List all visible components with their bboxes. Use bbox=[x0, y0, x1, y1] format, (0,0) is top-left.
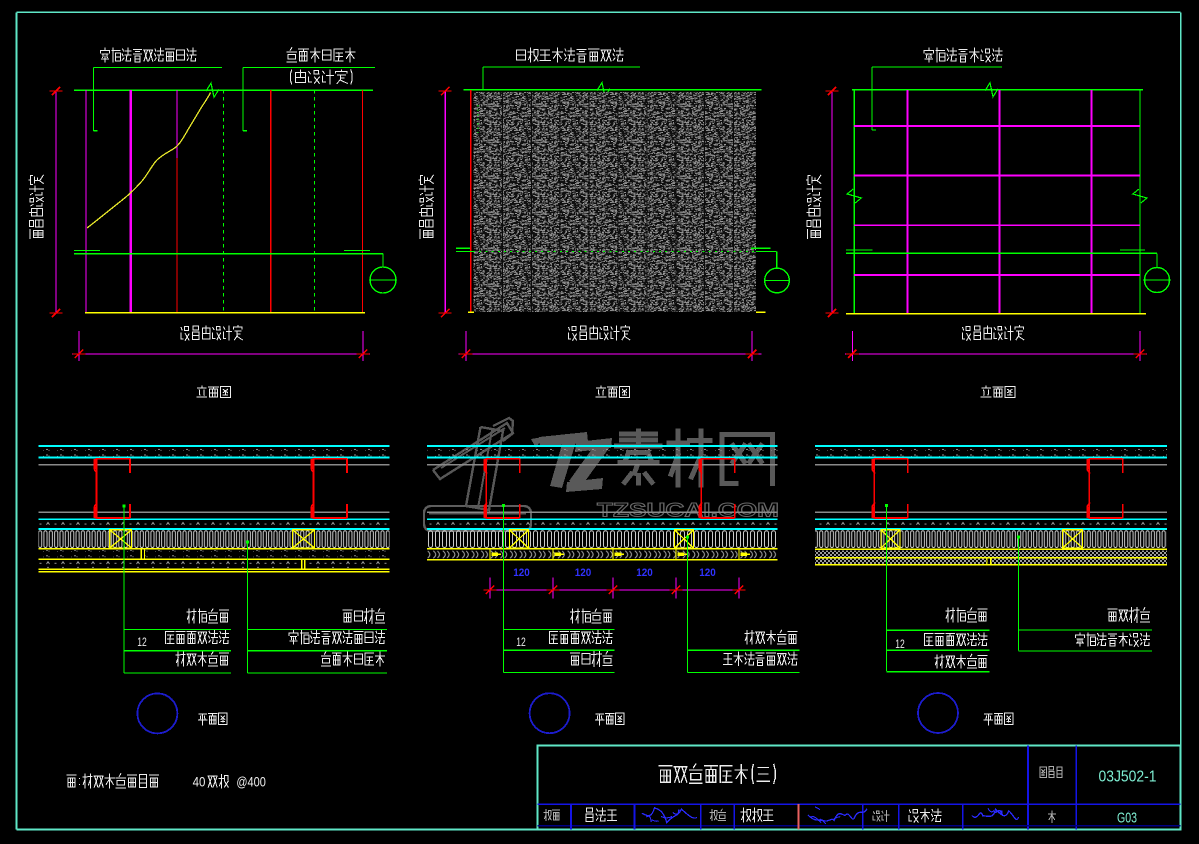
svg-text:120: 120 bbox=[575, 567, 592, 579]
svg-text:12: 12 bbox=[895, 637, 905, 651]
svg-text:@400: @400 bbox=[236, 774, 266, 790]
svg-text:12: 12 bbox=[137, 635, 147, 649]
svg-text:120: 120 bbox=[636, 567, 653, 579]
svg-text:03J502-1: 03J502-1 bbox=[1099, 769, 1157, 786]
svg-text:120: 120 bbox=[513, 567, 530, 579]
svg-text:40: 40 bbox=[193, 774, 206, 790]
svg-text:TZSUCAI.COM: TZSUCAI.COM bbox=[597, 501, 779, 522]
svg-text:120: 120 bbox=[699, 567, 716, 579]
svg-text:12: 12 bbox=[516, 635, 526, 649]
svg-text:G03: G03 bbox=[1117, 810, 1137, 827]
